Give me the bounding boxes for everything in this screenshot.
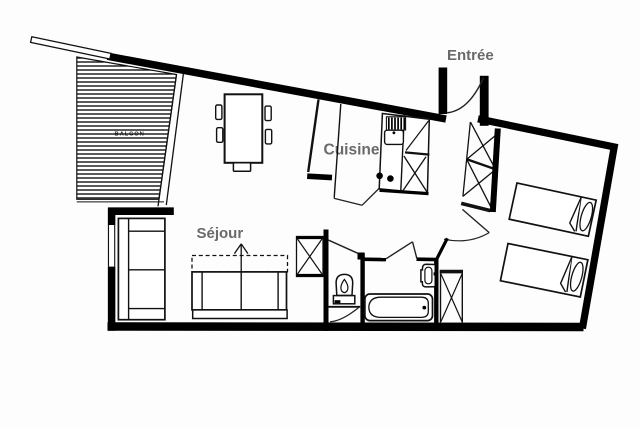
svg-text:BALCON: BALCON	[115, 132, 145, 138]
svg-text:Cuisine: Cuisine	[324, 141, 380, 158]
svg-text:Séjour: Séjour	[197, 225, 244, 242]
svg-text:Entrée: Entrée	[447, 47, 494, 64]
